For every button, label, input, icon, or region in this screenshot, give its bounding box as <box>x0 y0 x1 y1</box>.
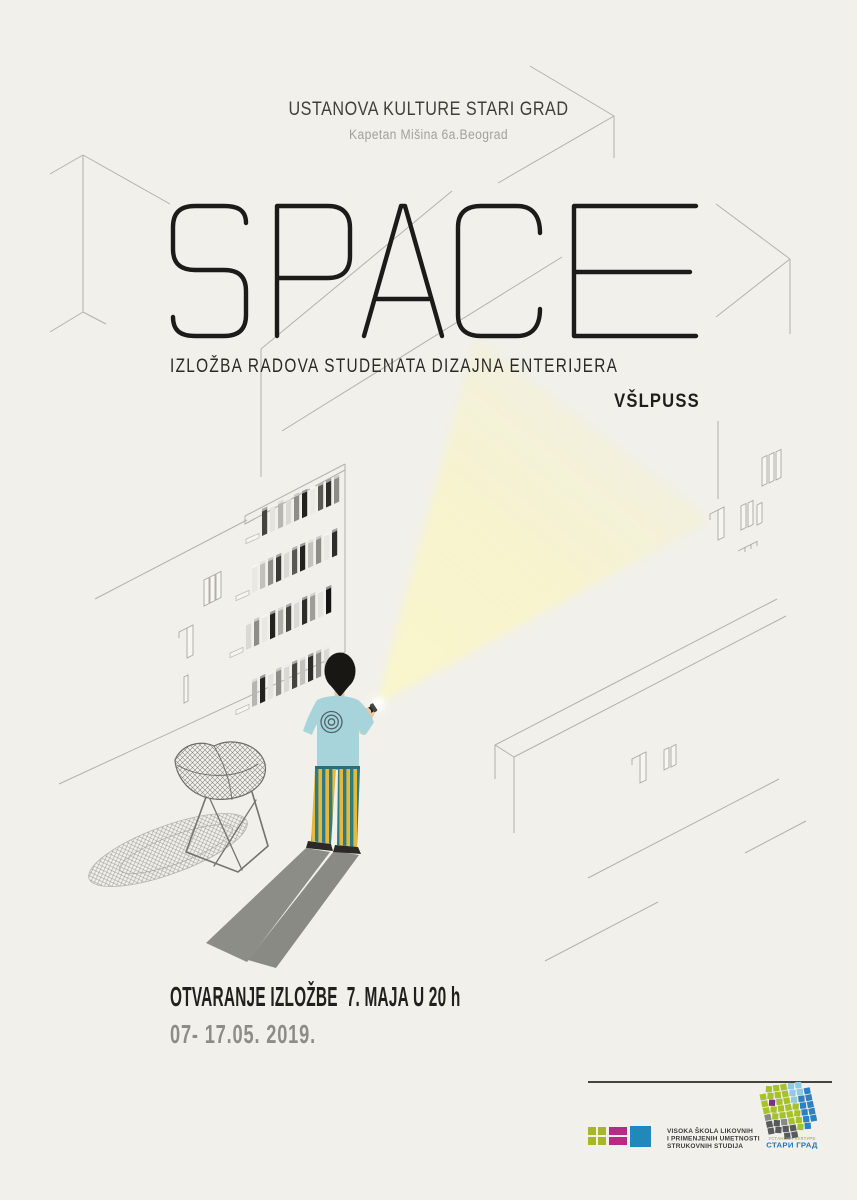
exhibition-poster: USTANOVA KULTURE STARI GRAD Kapetan Miši… <box>0 0 857 1200</box>
letter-P <box>277 206 350 336</box>
person-hair <box>325 653 356 690</box>
letter-E <box>574 206 696 336</box>
person-pants <box>311 769 360 847</box>
school-logo-squares <box>588 1126 652 1150</box>
person-waistband <box>315 766 360 770</box>
person-shirt <box>303 696 374 769</box>
culture-center-name: УСТАНОВА КУЛТУРЕ СТАРИ ГРАД <box>756 1136 828 1150</box>
person-shadow <box>206 848 359 968</box>
chair-shadow <box>81 799 255 902</box>
title-space-lettering <box>166 203 700 339</box>
person-figure <box>303 653 378 855</box>
wire-chair <box>175 742 268 872</box>
venue-name: USTANOVA KULTURE STARI GRAD <box>64 99 792 121</box>
letter-S <box>173 206 246 336</box>
culture-center-mosaic-logo <box>756 1082 828 1140</box>
book-row <box>246 475 339 544</box>
isometric-illustration <box>0 0 857 1200</box>
letter-A <box>364 206 442 336</box>
organizer-name: VŠLPUSS <box>614 390 700 413</box>
culture-name-bottom: СТАРИ ГРАД <box>756 1141 828 1150</box>
bookshelf-books <box>230 475 339 715</box>
venue-address: Kapetan Mišina 6a.Beograd <box>43 127 814 142</box>
exhibition-subtitle: IZLOŽBA RADOVA STUDENATA DIZAJNA ENTERIJ… <box>170 356 618 378</box>
exhibition-dates: 07- 17.05. 2019. <box>170 1019 316 1050</box>
letter-C <box>458 206 540 336</box>
opening-info: OTVARANJE IZLOŽBE 7. MAJA U 20 h <box>170 981 460 1013</box>
